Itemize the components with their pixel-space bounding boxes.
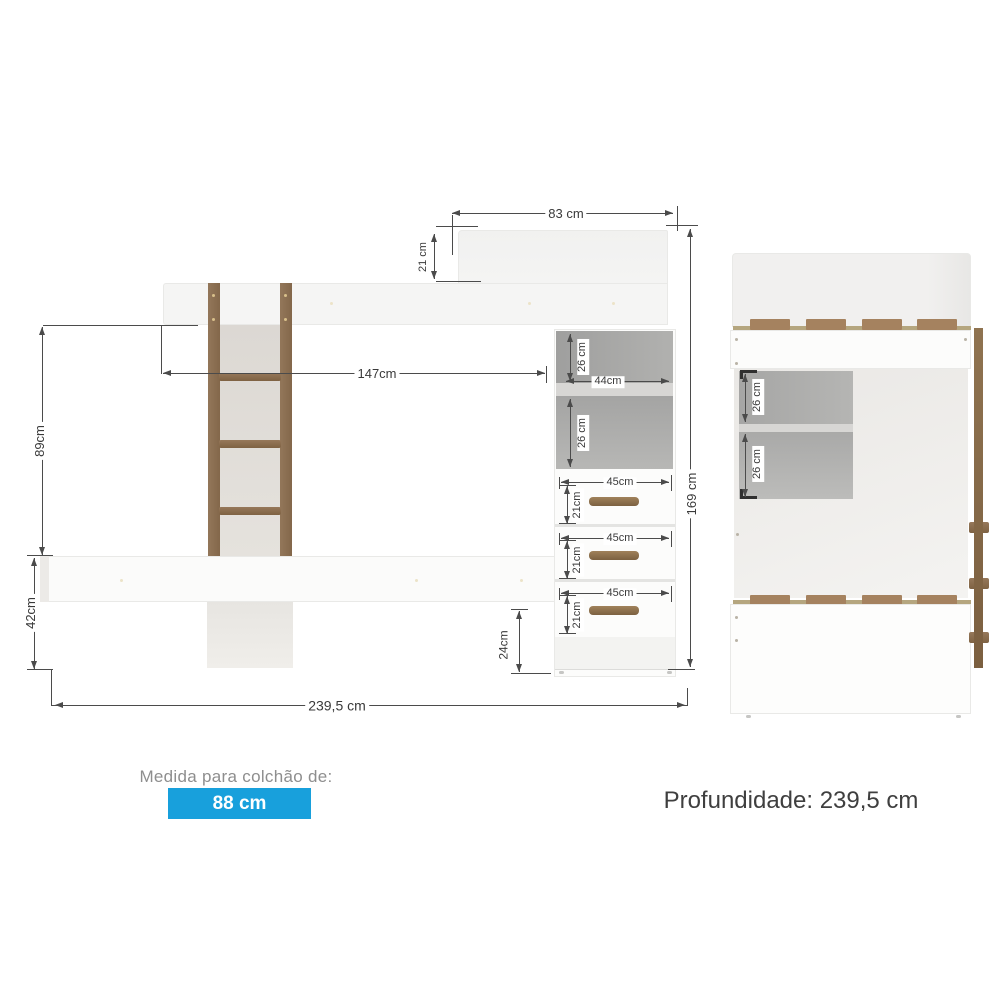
mattress-size-value: 88 cm [213,793,267,815]
sv-screw-pin [964,338,967,341]
sv-slat [862,319,902,330]
sv-foot [956,715,961,718]
sv-screw-pin [736,533,739,536]
sv-ladder-side-stile [974,328,983,668]
sv-headboard-panel [732,253,971,327]
arrow-down-icon [742,489,748,497]
arrow-down-icon [742,414,748,422]
sv-shelf-board [739,424,853,432]
sv-lower-body [730,604,971,714]
arrow-up-icon [742,374,748,382]
dim-bracket [740,370,757,373]
sv-foot [746,715,751,718]
sv-dim-label-26-upper: 26 cm [752,379,764,415]
sv-upper-rail [730,330,971,369]
sv-screw-pin [735,338,738,341]
sv-screw-pin [735,616,738,619]
sv-dim-label-26-lower: 26 cm [752,446,764,482]
sv-slat [917,319,957,330]
sv-screw-pin [735,362,738,365]
sv-slat [750,319,790,330]
sv-screw-pin [735,639,738,642]
depth-label: Profundidade: 239,5 cm [664,787,919,815]
mattress-size-label: Medida para colchão de: [139,767,332,787]
mattress-size-badge: 88 cm [168,788,311,819]
furniture-dimension-diagram: 83 cm 21 cm 147cm 89cm 42cm 23 [0,0,1000,1000]
sv-slat [806,319,846,330]
side-view-diagram: 26 cm 26 cm [0,0,1000,740]
sv-dim-line-26-lower [745,434,746,497]
arrow-up-icon [742,434,748,442]
